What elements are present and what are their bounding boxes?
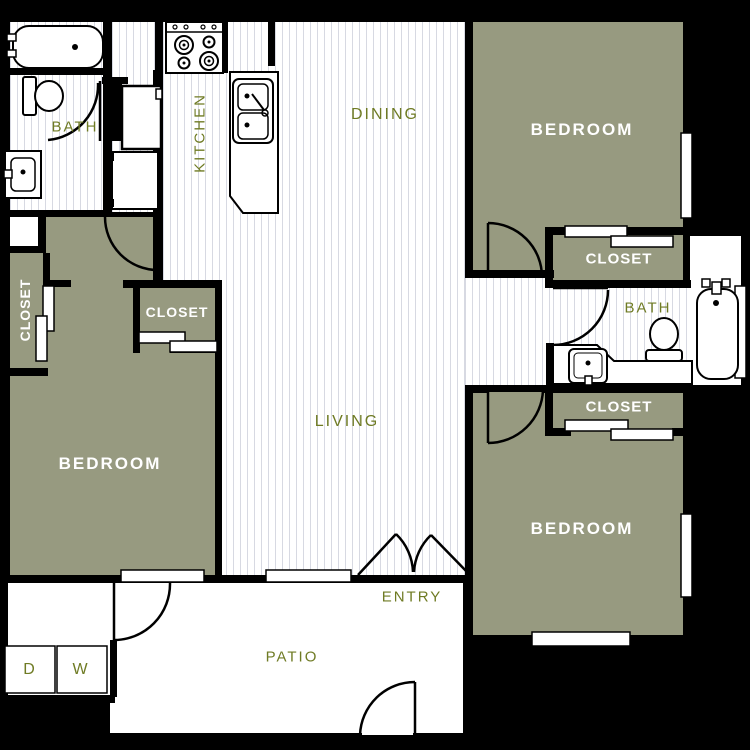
left-hall-fill (45, 217, 153, 288)
dryer-label: D (23, 661, 37, 679)
room-label-kitchen: KITCHEN (192, 93, 209, 173)
room-label-bedroom-bottom-right: BEDROOM (531, 519, 634, 539)
floor-plan: BATH KITCHEN DINING LIVING ENTRY PATIO B… (0, 0, 750, 750)
room-label-closet-top-right: CLOSET (586, 251, 653, 268)
room-label-living: LIVING (315, 413, 379, 431)
bath-left-floor (10, 22, 103, 211)
room-label-closet-mid-right: CLOSET (586, 399, 653, 416)
tub-alcove-floor (690, 235, 745, 385)
room-label-closet-left: CLOSET (17, 279, 33, 342)
room-label-bedroom-top-right: BEDROOM (531, 120, 634, 140)
room-label-bath-right: BATH (625, 300, 672, 317)
room-label-closet-hall: CLOSET (146, 304, 209, 320)
room-label-bedroom-left: BEDROOM (59, 454, 162, 474)
bedroom-top-door-fill (472, 227, 553, 270)
room-label-entry: ENTRY (382, 589, 443, 606)
bedroom-bottom-right-fill (472, 392, 683, 635)
room-label-bath-left: BATH (52, 119, 99, 136)
utility-niche (8, 217, 38, 246)
fridge-nook-floor (112, 22, 155, 212)
room-label-dining: DINING (351, 106, 419, 124)
room-label-patio: PATIO (266, 649, 319, 666)
hall-floor (465, 278, 553, 385)
washer-label: W (72, 661, 89, 679)
